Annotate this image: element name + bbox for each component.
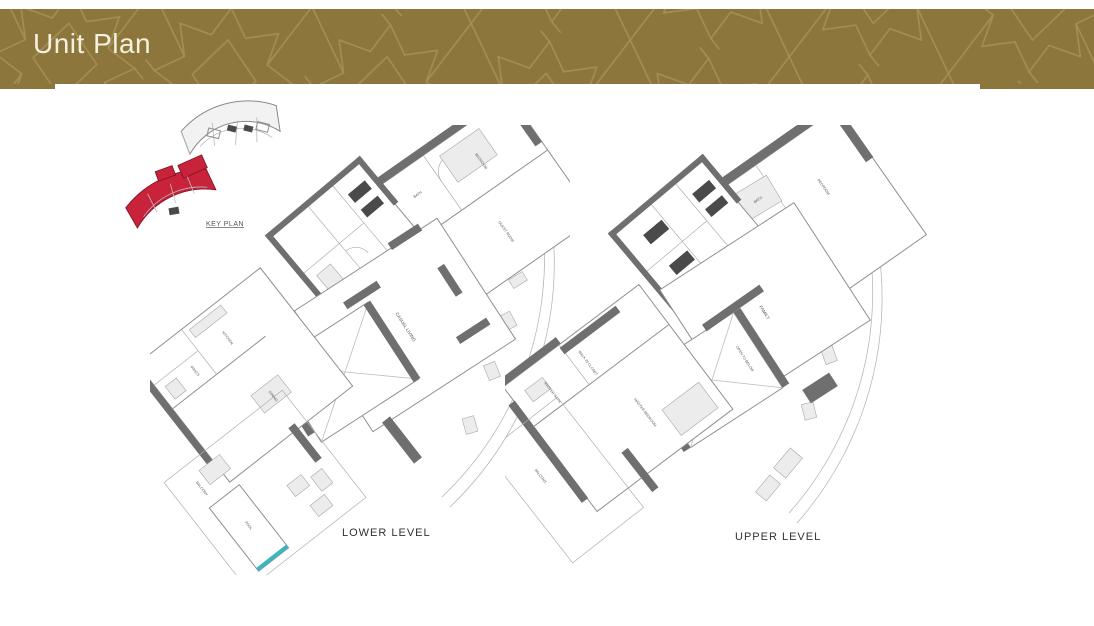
upper-level-caption: UPPER LEVEL: [735, 531, 821, 543]
geometric-pattern: [0, 9, 1094, 84]
header-band: Unit Plan: [0, 9, 1094, 84]
band-extension-right: [980, 84, 1094, 89]
upper-level-plan: BALCONY BATH W.I.C BEDROOM FAMILY: [505, 125, 945, 595]
room-label: POOL: [244, 521, 253, 531]
room-label: BALCONY: [534, 468, 548, 484]
room-label: BALCONY: [195, 481, 209, 497]
page-title: Unit Plan: [33, 28, 151, 60]
lower-level-caption: LOWER LEVEL: [342, 527, 431, 539]
pool-water-edge: [256, 545, 288, 572]
band-extension-left: [0, 84, 55, 89]
